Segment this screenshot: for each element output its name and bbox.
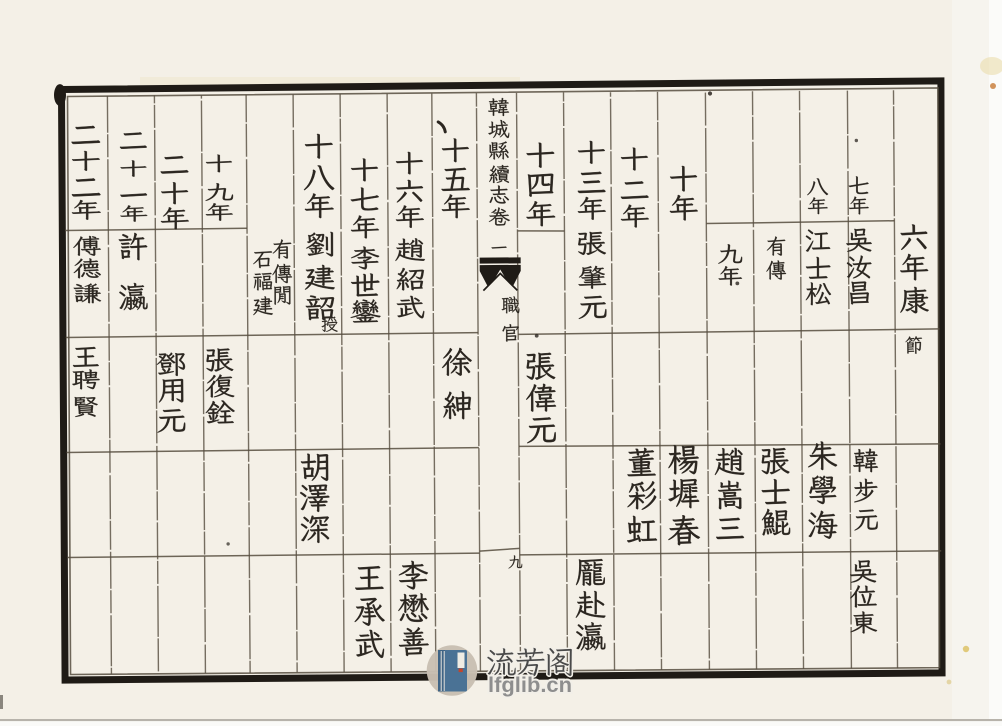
- svg-text:lfglib.cn: lfglib.cn: [488, 674, 572, 697]
